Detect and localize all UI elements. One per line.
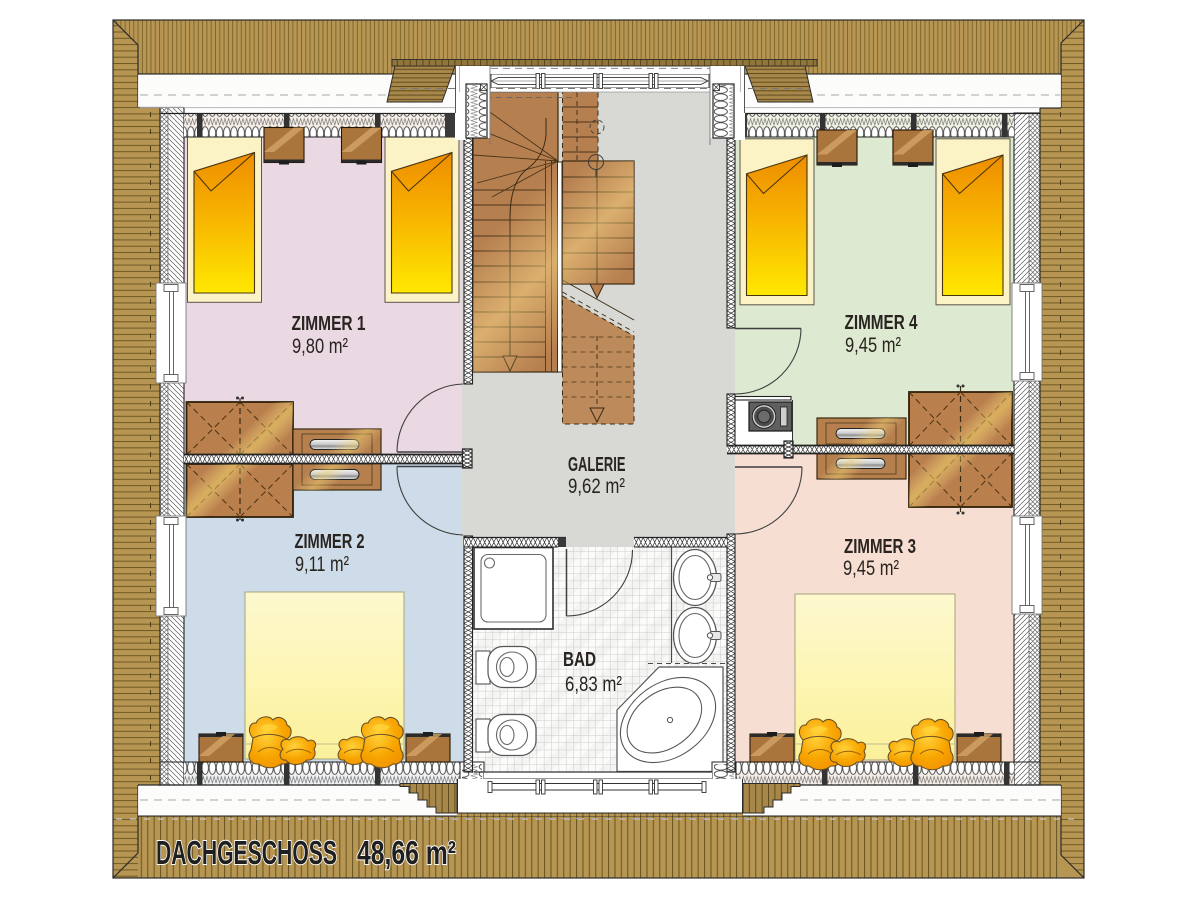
svg-text:GALERIE: GALERIE [568,454,626,476]
svg-text:9,11 m²: 9,11 m² [295,553,349,576]
svg-text:ZIMMER 4: ZIMMER 4 [845,312,919,334]
svg-text:48,66 m²: 48,66 m² [357,834,456,871]
svg-text:6,83 m²: 6,83 m² [565,673,622,696]
svg-text:ZIMMER 1: ZIMMER 1 [292,313,366,335]
svg-text:9,80 m²: 9,80 m² [292,335,348,358]
svg-text:ZIMMER 3: ZIMMER 3 [844,536,916,558]
svg-text:9,45 m²: 9,45 m² [845,334,901,357]
svg-text:ZIMMER 2: ZIMMER 2 [295,531,365,553]
svg-text:9,45 m²: 9,45 m² [843,557,899,580]
svg-text:DACHGESCHOSS: DACHGESCHOSS [156,834,337,871]
svg-text:9,62 m²: 9,62 m² [568,475,625,498]
svg-text:BAD: BAD [563,649,596,671]
